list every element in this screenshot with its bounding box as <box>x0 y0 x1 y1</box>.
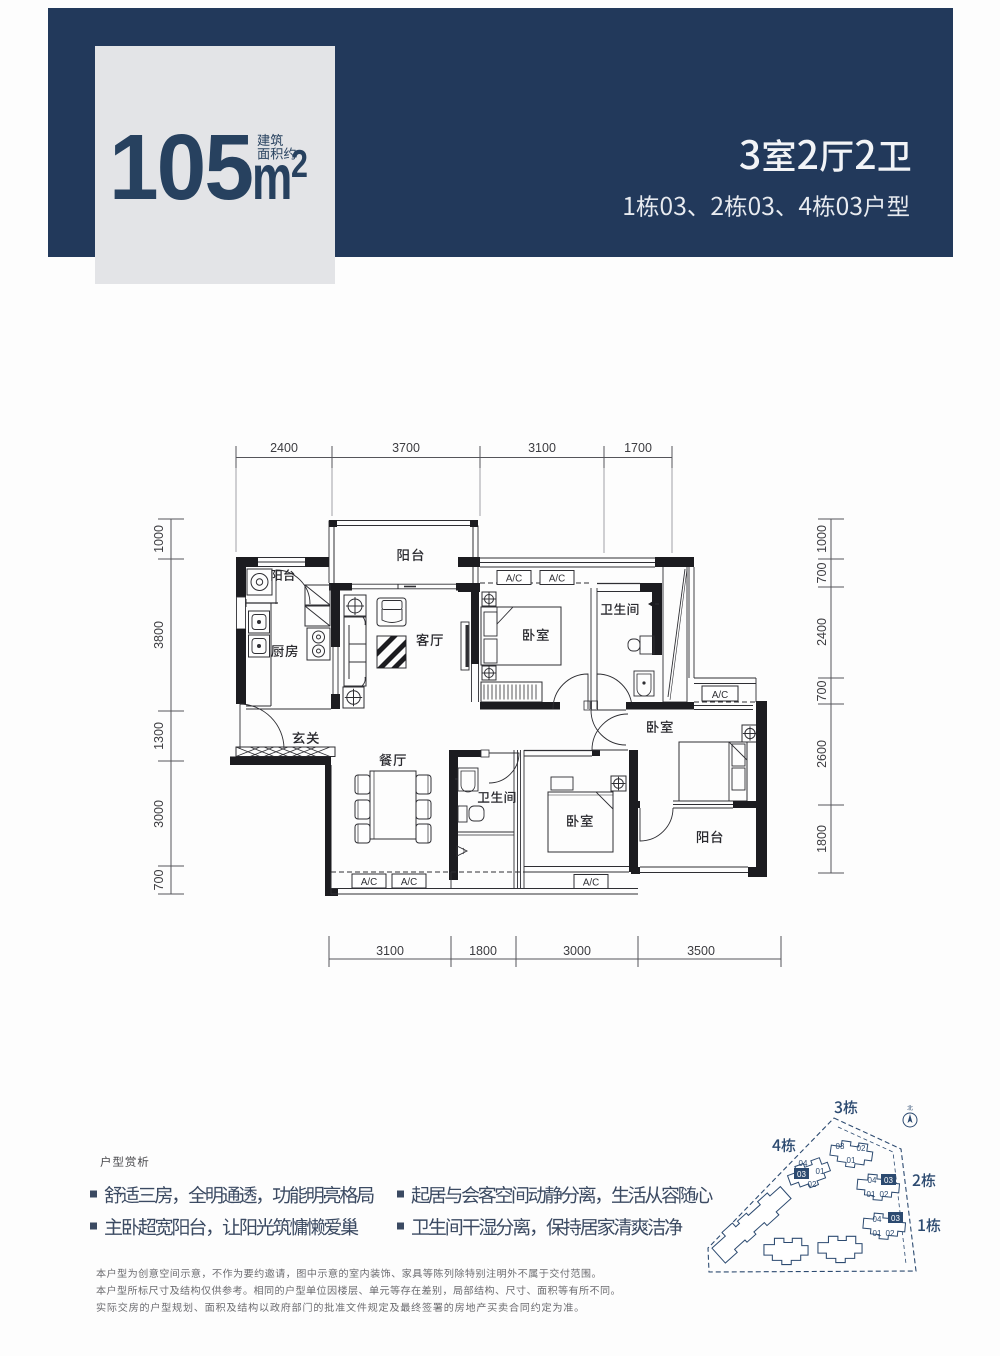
svg-text:A/C: A/C <box>583 877 599 888</box>
svg-text:1000: 1000 <box>152 525 166 553</box>
svg-text:03: 03 <box>797 1170 806 1179</box>
svg-text:700: 700 <box>152 870 166 891</box>
svg-text:03: 03 <box>891 1214 900 1223</box>
svg-text:A/C: A/C <box>549 573 565 584</box>
svg-text:01: 01 <box>867 1190 876 1199</box>
svg-text:105: 105 <box>109 115 252 219</box>
svg-text:3500: 3500 <box>687 944 715 958</box>
svg-text:2: 2 <box>291 142 308 185</box>
svg-text:04: 04 <box>868 1176 877 1185</box>
svg-text:02: 02 <box>857 1144 866 1153</box>
svg-text:3100: 3100 <box>528 441 556 455</box>
svg-text:3000: 3000 <box>152 800 166 828</box>
svg-text:04: 04 <box>873 1215 882 1224</box>
svg-text:01: 01 <box>873 1229 882 1238</box>
svg-text:A/C: A/C <box>506 573 522 584</box>
svg-text:2400: 2400 <box>270 441 298 455</box>
svg-text:01: 01 <box>847 1156 856 1165</box>
svg-text:02: 02 <box>808 1180 817 1189</box>
svg-text:1700: 1700 <box>624 441 652 455</box>
svg-text:1800: 1800 <box>815 825 829 853</box>
svg-text:1000: 1000 <box>815 525 829 553</box>
svg-text:700: 700 <box>815 681 829 702</box>
svg-text:3700: 3700 <box>392 441 420 455</box>
svg-text:A/C: A/C <box>712 690 728 701</box>
svg-text:1300: 1300 <box>152 722 166 750</box>
svg-text:02: 02 <box>880 1190 889 1199</box>
svg-text:2600: 2600 <box>815 740 829 768</box>
svg-text:3000: 3000 <box>563 944 591 958</box>
svg-text:03: 03 <box>836 1142 845 1151</box>
svg-text:03: 03 <box>884 1176 893 1185</box>
svg-text:3100: 3100 <box>376 944 404 958</box>
svg-text:A/C: A/C <box>361 877 377 888</box>
svg-text:3800: 3800 <box>152 621 166 649</box>
svg-text:01: 01 <box>816 1167 825 1176</box>
svg-text:700: 700 <box>815 563 829 584</box>
svg-text:2400: 2400 <box>815 618 829 646</box>
svg-text:A/C: A/C <box>401 877 417 888</box>
svg-text:04: 04 <box>799 1159 808 1168</box>
svg-text:1800: 1800 <box>469 944 497 958</box>
svg-text:02: 02 <box>886 1229 895 1238</box>
